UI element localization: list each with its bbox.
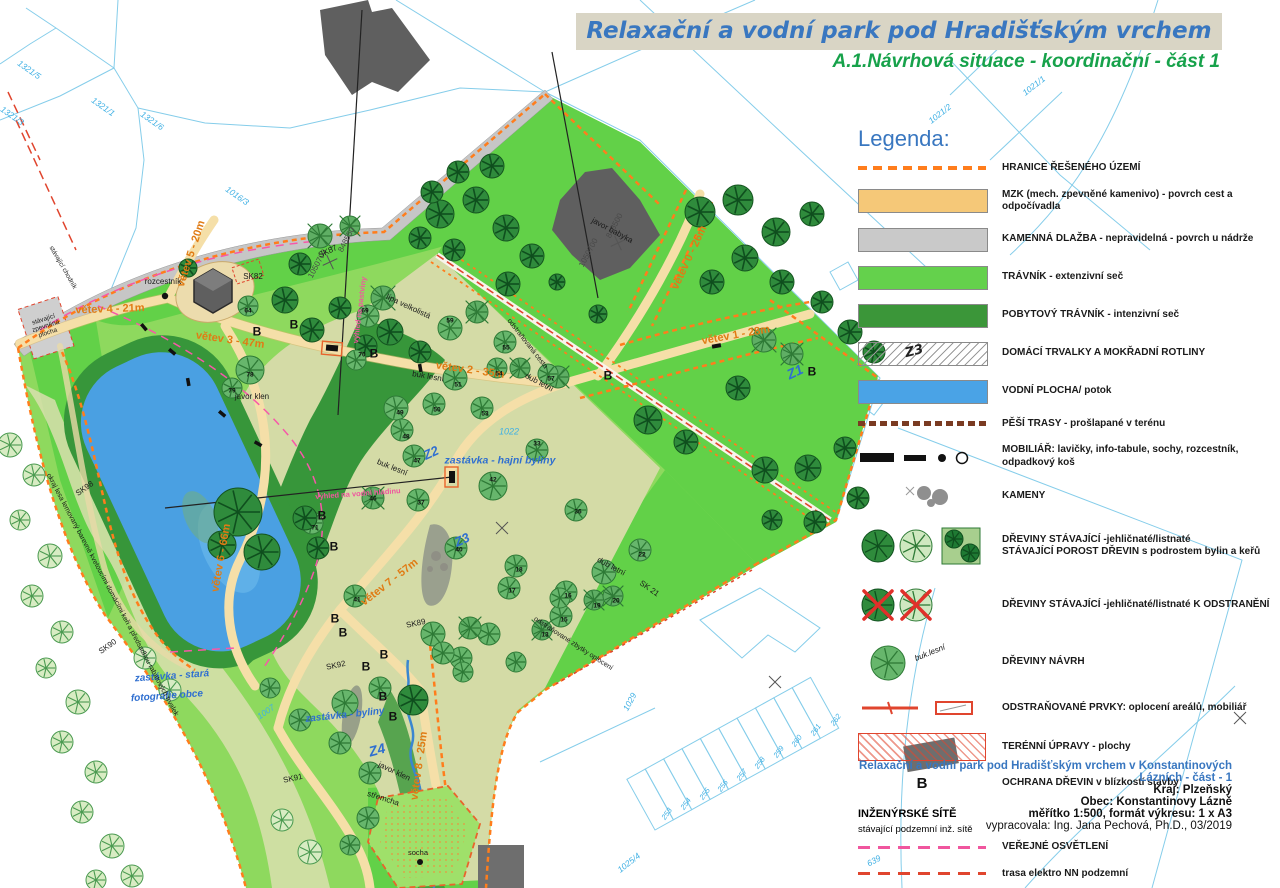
info-author: vypracovala: Ing. Jana Pechová, Ph.D., 0… — [812, 820, 1232, 832]
tree-symbol — [443, 239, 465, 261]
tree-symbol — [762, 510, 782, 530]
legend-label: VEŘEJNÉ OSVĚTLENÍ — [1002, 841, 1108, 854]
legend-label: KAMENNÁ DLAŽBA - nepravidelná - povrch u… — [1002, 233, 1253, 246]
tree-symbol — [674, 430, 698, 454]
legend-label: trasa elektro NN podzemní — [1002, 868, 1128, 881]
tree-symbol — [208, 531, 236, 559]
area-fill-swatch — [858, 304, 988, 328]
tree-symbol — [634, 406, 662, 434]
tree-symbol — [762, 218, 790, 246]
tree-symbol — [71, 801, 93, 823]
tree-symbol — [466, 301, 488, 323]
tree-symbol — [289, 253, 311, 275]
tree-symbol — [289, 709, 311, 731]
legend-swatch — [858, 483, 988, 509]
info-region: Kraj: Plzeňský — [812, 784, 1232, 796]
tree-symbol — [238, 296, 258, 316]
network-item-1: trasa elektro NN podzemní — [858, 868, 1273, 881]
area-fill-swatch — [858, 380, 988, 404]
area-fill-swatch — [858, 228, 988, 252]
tree-symbol — [496, 272, 520, 296]
electro-dash-swatch — [858, 872, 986, 875]
tree-symbol — [159, 679, 181, 701]
legend-swatch — [858, 421, 988, 426]
network-items: VEŘEJNÉ OSVĚTLENÍtrasa elektro NN podzem… — [858, 841, 1273, 880]
terrain-hatch-swatch — [858, 733, 986, 761]
legend-item-12: buk.lesníDŘEVINY NÁVRH — [858, 641, 1273, 683]
tree-symbol — [222, 378, 242, 398]
tree-symbol — [407, 489, 429, 511]
tree-symbol — [332, 690, 358, 716]
tree-symbol — [459, 617, 481, 639]
tree-symbol — [66, 690, 90, 714]
existing-trees-icon — [858, 523, 988, 569]
legend-swatch: Z3 — [858, 342, 988, 366]
tree-symbol — [549, 274, 565, 290]
tree-symbol — [726, 376, 750, 400]
tree-symbol — [426, 200, 454, 228]
footpath-dash-swatch — [858, 421, 986, 426]
legend-swatch — [858, 447, 988, 467]
tree-symbol — [432, 642, 454, 664]
legend-swatch — [858, 228, 988, 252]
tree-symbol — [421, 181, 443, 203]
tree-symbol — [443, 366, 467, 390]
tree-symbol — [752, 457, 778, 483]
furniture-icons — [858, 447, 978, 467]
tree-symbol — [369, 677, 391, 699]
tree-symbol — [86, 870, 106, 888]
tree-symbol — [700, 270, 724, 294]
legend-label: KAMENY — [1002, 490, 1045, 503]
legend-swatch — [858, 166, 988, 170]
tree-symbol — [781, 343, 803, 365]
boundary-dash-swatch — [858, 166, 986, 170]
legend-item-4: POBYTOVÝ TRÁVNÍK - intenzivní seč — [858, 304, 1273, 328]
info-scale: měřítko 1:500, formát výkresu: 1 x A3 — [812, 808, 1232, 820]
tree-symbol — [51, 731, 73, 753]
tree-symbol — [340, 835, 360, 855]
tree-symbol — [21, 585, 43, 607]
tree-symbol — [795, 455, 821, 481]
tree-symbol — [498, 577, 520, 599]
tree-symbol — [479, 472, 507, 500]
legend-item-8: MOBILIÁŘ: lavičky, info-tabule, sochy, r… — [858, 444, 1273, 469]
tree-symbol — [685, 197, 715, 227]
tree-symbol — [752, 328, 776, 352]
removed-elements-icon — [858, 697, 988, 719]
tree-symbol — [532, 620, 552, 640]
legend-item-2: KAMENNÁ DLAŽBA - nepravidelná - povrch u… — [858, 228, 1273, 252]
tree-symbol — [770, 270, 794, 294]
legend-item-9: KAMENY — [858, 483, 1273, 509]
tree-symbol — [377, 319, 403, 345]
area-fill-swatch — [858, 266, 988, 290]
tree-symbol — [121, 865, 143, 887]
tree-symbol — [38, 544, 62, 568]
info-municipality: Obec: Konstantinovy Lázně — [812, 796, 1232, 808]
legend-label: TERÉNNÍ ÚPRAVY - plochy — [1002, 741, 1131, 754]
tree-symbol — [505, 555, 527, 577]
legend-item-6: VODNÍ PLOCHA/ potok — [858, 380, 1273, 404]
tree-symbol — [384, 396, 408, 420]
tree-symbol — [494, 331, 516, 353]
tree-symbol — [834, 437, 856, 459]
tree-symbol — [732, 245, 758, 271]
tree-symbol — [471, 397, 493, 419]
legend-label: HRANICE ŘEŠENÉHO ÚZEMÍ — [1002, 162, 1140, 175]
tree-symbol — [293, 506, 317, 530]
tree-symbol — [589, 305, 607, 323]
tree-symbol — [629, 539, 651, 561]
sheet-subtitle: A.1.Návrhová situace - koordinační - čás… — [580, 51, 1220, 73]
tree-symbol — [271, 809, 293, 831]
tree-symbol — [409, 227, 431, 249]
network-item-0: VEŘEJNÉ OSVĚTLENÍ — [858, 841, 1273, 854]
legend-label: DŘEVINY STÁVAJÍCÍ -jehličnaté/listnaté K… — [1002, 599, 1269, 612]
tree-symbol — [308, 224, 332, 248]
legend-item-1: MZK (mech. zpevněné kamenivo) - povrch c… — [858, 189, 1273, 214]
removed-trees-icon — [858, 583, 988, 627]
tree-symbol — [463, 187, 489, 213]
legend-item-3: TRÁVNÍK - extenzivní seč — [858, 266, 1273, 290]
park-areas — [14, 0, 959, 888]
tree-symbol — [357, 305, 379, 327]
tree-symbol — [550, 588, 570, 608]
plan-sheet: větev 0 - 26mvětev 1 - 28mvětev 2 - 35mv… — [0, 0, 1280, 888]
tree-symbol — [260, 678, 280, 698]
tree-symbol — [447, 161, 469, 183]
info-project-line2: Lázních - část - 1 — [812, 772, 1232, 784]
sheet-title: Relaxační a vodní park pod Hradišťským v… — [576, 13, 1222, 50]
svg-text:buk.lesní: buk.lesní — [913, 642, 947, 663]
tree-symbol — [134, 647, 156, 669]
tree-symbol — [236, 356, 264, 384]
legend-swatch — [858, 583, 988, 627]
tree-symbol — [506, 652, 526, 672]
stones-icon — [858, 483, 978, 509]
tree-symbol — [403, 445, 425, 467]
tree-symbol — [493, 215, 519, 241]
tree-symbol — [329, 732, 351, 754]
tree-symbol — [409, 341, 431, 363]
tree-symbol — [584, 590, 604, 610]
legend-swatch — [858, 266, 988, 290]
tree-symbol — [453, 662, 473, 682]
legend-swatch — [858, 846, 988, 849]
legend-swatch — [858, 523, 988, 569]
tree-symbol — [357, 807, 379, 829]
tree-symbol — [23, 464, 45, 486]
legend-swatch — [858, 304, 988, 328]
tree-symbol — [510, 358, 530, 378]
tree-symbol — [520, 244, 544, 268]
legend-label: DŘEVINY NÁVRH — [1002, 656, 1085, 669]
tree-symbol — [480, 154, 504, 178]
tree-symbol — [565, 499, 587, 521]
legend-label: VODNÍ PLOCHA/ potok — [1002, 385, 1111, 398]
tree-symbol — [10, 510, 30, 530]
tree-symbol — [371, 286, 395, 310]
tree-symbol — [538, 364, 558, 384]
legend-label: MZK (mech. zpevněné kamenivo) - povrch c… — [1002, 189, 1273, 214]
tree-symbol — [340, 216, 360, 236]
legend-heading: Legenda: — [858, 126, 1273, 152]
tree-symbol — [85, 761, 107, 783]
legend-label: DOMÁCÍ TRVALKY A MOKŘADNÍ ROTLINY — [1002, 347, 1205, 360]
tree-symbol — [329, 297, 351, 319]
tree-symbol — [438, 316, 462, 340]
tree-symbol — [391, 419, 413, 441]
legend-swatch — [858, 872, 988, 875]
tree-symbol — [723, 185, 753, 215]
tree-symbol — [487, 358, 507, 378]
legend-item-11: DŘEVINY STÁVAJÍCÍ -jehličnaté/listnaté K… — [858, 583, 1273, 627]
legend-item-14: TERÉNNÍ ÚPRAVY - plochy — [858, 733, 1273, 761]
legend-item-13: ODSTRAŇOVANÉ PRVKY: oplocení areálů, mob… — [858, 697, 1273, 719]
legend-label: DŘEVINY STÁVAJÍCÍ -jehličnaté/listnatéST… — [1002, 534, 1260, 559]
tree-symbol — [526, 439, 548, 461]
legend-label: POBYTOVÝ TRÁVNÍK - intenzivní seč — [1002, 309, 1179, 322]
legend-swatch — [858, 733, 988, 761]
tree-symbol — [36, 658, 56, 678]
tree-symbol — [603, 586, 623, 606]
tree-symbol — [100, 834, 124, 858]
legend-item-10: DŘEVINY STÁVAJÍCÍ -jehličnaté/listnatéST… — [858, 523, 1273, 569]
tree-symbol — [272, 287, 298, 313]
proposed-tree-icon: buk.lesní — [858, 641, 988, 683]
tree-symbol — [214, 488, 262, 536]
legend-item-7: PĚŠÍ TRASY - prošlapané v terénu — [858, 418, 1273, 431]
legend-item-0: HRANICE ŘEŠENÉHO ÚZEMÍ — [858, 162, 1273, 175]
legend-label: TRÁVNÍK - extenzivní seč — [1002, 271, 1123, 284]
tree-symbol — [800, 202, 824, 226]
tree-symbol — [423, 393, 445, 415]
drawing-info-block: Relaxační a vodní park pod Hradišťským v… — [812, 760, 1232, 832]
legend-swatch — [858, 189, 988, 213]
tree-symbol — [346, 350, 366, 370]
tree-symbol — [398, 685, 428, 715]
tree-symbol — [362, 487, 384, 509]
tree-symbol — [359, 762, 381, 784]
tree-symbol — [804, 511, 826, 533]
tree-symbol — [0, 433, 22, 457]
legend-item-5: Z3DOMÁCÍ TRVALKY A MOKŘADNÍ ROTLINY — [858, 342, 1273, 366]
tree-symbol — [51, 621, 73, 643]
legend-label: PĚŠÍ TRASY - prošlapané v terénu — [1002, 418, 1165, 431]
tree-symbol — [592, 560, 616, 584]
perennials-hatch-swatch: Z3 — [858, 342, 988, 366]
tree-symbol — [179, 259, 197, 277]
legend-label: MOBILIÁŘ: lavičky, info-tabule, sochy, r… — [1002, 444, 1273, 469]
area-fill-swatch — [858, 189, 988, 213]
legend-items: HRANICE ŘEŠENÉHO ÚZEMÍMZK (mech. zpevněn… — [858, 162, 1273, 792]
lighting-dash-swatch — [858, 846, 986, 849]
tree-symbol — [344, 585, 366, 607]
legend-swatch — [858, 697, 988, 719]
legend-swatch: buk.lesní — [858, 641, 988, 683]
tree-symbol — [298, 840, 322, 864]
legend-swatch — [858, 380, 988, 404]
info-project-line1: Relaxační a vodní park pod Hradišťským v… — [812, 760, 1232, 772]
legend-label: ODSTRAŇOVANÉ PRVKY: oplocení areálů, mob… — [1002, 702, 1247, 715]
tree-symbol — [811, 291, 833, 313]
tree-symbol — [300, 318, 324, 342]
tree-symbol — [445, 537, 467, 559]
tree-symbol — [307, 537, 329, 559]
tree-symbol — [244, 534, 280, 570]
